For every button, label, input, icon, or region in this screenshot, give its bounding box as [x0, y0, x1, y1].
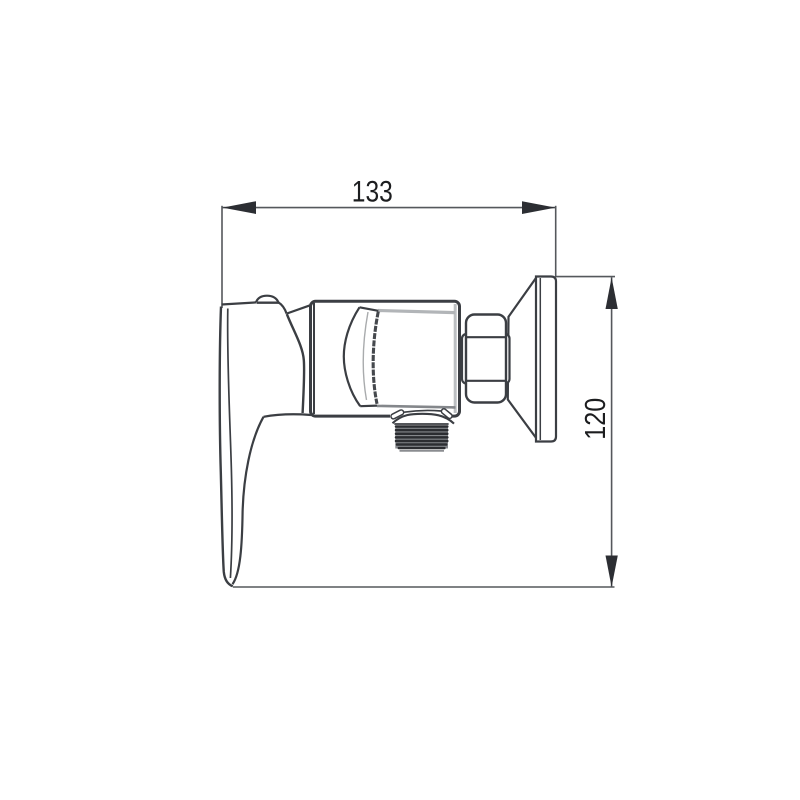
svg-text:133: 133 [352, 175, 393, 208]
svg-text:120: 120 [580, 398, 612, 440]
